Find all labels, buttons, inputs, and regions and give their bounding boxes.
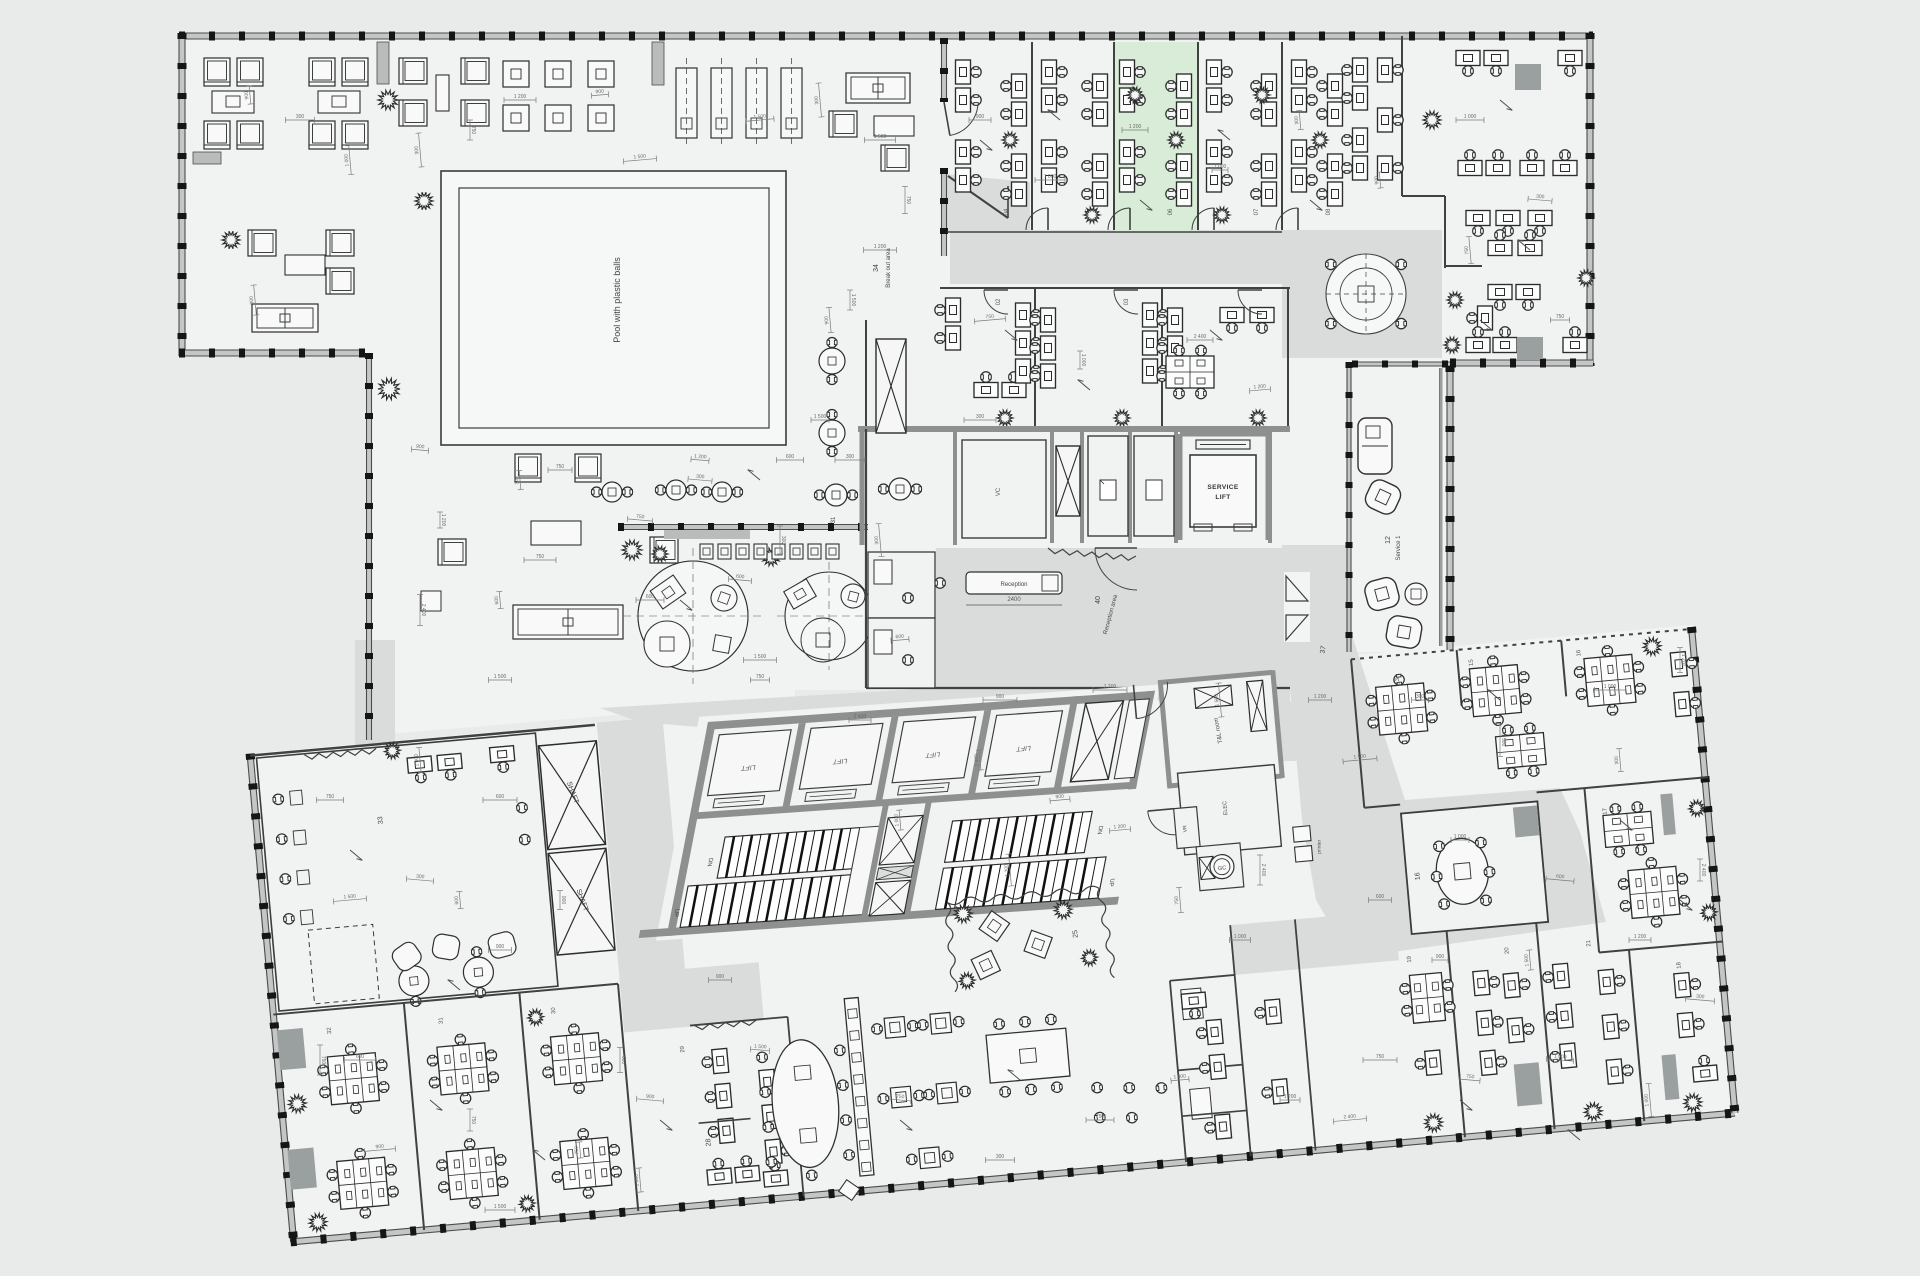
svg-text:750: 750 [470,1116,476,1125]
svg-text:600: 600 [646,594,655,600]
svg-text:300: 300 [846,454,855,460]
svg-text:900: 900 [1374,176,1381,185]
svg-text:1 200: 1 200 [514,94,527,100]
svg-text:02: 02 [996,298,1002,305]
svg-text:1 000: 1 000 [343,154,350,167]
svg-text:300: 300 [416,874,425,881]
svg-text:300: 300 [1614,756,1621,765]
svg-text:2400: 2400 [1007,597,1021,603]
svg-text:900: 900 [249,296,256,305]
svg-text:750: 750 [326,794,335,800]
svg-text:2 400: 2 400 [1260,864,1266,877]
svg-text:LIFT: LIFT [1215,494,1230,501]
svg-text:16: 16 [1576,649,1583,657]
svg-text:900: 900 [1055,794,1064,801]
svg-text:LIFT: LIFT [924,750,940,758]
svg-text:19: 19 [1407,955,1414,963]
svg-text:13: 13 [1395,677,1402,685]
svg-text:300: 300 [514,476,521,485]
svg-text:31: 31 [831,516,837,523]
svg-text:20: 20 [1504,946,1511,954]
svg-text:1 000: 1 000 [633,1174,640,1187]
svg-text:600: 600 [736,574,745,581]
svg-text:750: 750 [1556,314,1565,320]
svg-text:900: 900 [560,896,566,905]
svg-text:300: 300 [814,96,821,105]
svg-text:1 500: 1 500 [1500,734,1506,747]
svg-text:600: 600 [454,896,461,905]
svg-text:600: 600 [494,596,501,605]
svg-text:600: 600 [895,634,904,641]
svg-text:29: 29 [680,1045,687,1053]
svg-text:1 500: 1 500 [754,1043,767,1050]
svg-text:300: 300 [780,536,786,545]
svg-text:2 400: 2 400 [854,714,867,720]
svg-text:34: 34 [873,264,880,272]
svg-text:GC: GC [1218,865,1227,872]
svg-text:1 200: 1 200 [694,453,707,460]
svg-text:1 000: 1 000 [413,754,420,767]
svg-text:1 500: 1 500 [814,414,827,420]
svg-text:1 000: 1 000 [1214,164,1227,170]
svg-text:1 200: 1 200 [1253,383,1266,390]
svg-text:16: 16 [1414,872,1422,880]
svg-text:600: 600 [1376,894,1385,900]
svg-text:300: 300 [296,114,305,120]
svg-text:750: 750 [636,514,645,521]
svg-text:1 500: 1 500 [633,153,646,160]
svg-text:30: 30 [551,1006,558,1014]
svg-text:600: 600 [620,1056,626,1065]
svg-text:LIFT: LIFT [832,757,848,765]
svg-text:1 500: 1 500 [754,654,767,660]
svg-text:300: 300 [696,474,705,481]
svg-text:21: 21 [1586,939,1593,947]
svg-text:900: 900 [244,91,251,100]
svg-text:900: 900 [496,944,505,950]
svg-text:900: 900 [716,974,725,980]
svg-text:VC: VC [996,487,1002,496]
svg-text:37: 37 [1319,645,1327,654]
svg-text:2 400: 2 400 [1194,334,1207,340]
svg-text:2 400: 2 400 [420,604,426,617]
svg-text:04: 04 [1004,208,1010,215]
svg-text:40: 40 [1095,596,1102,604]
svg-text:18: 18 [1676,961,1683,969]
svg-text:900: 900 [416,444,425,451]
svg-text:300: 300 [996,1154,1005,1160]
svg-text:LIFT: LIFT [740,763,756,771]
svg-text:900: 900 [996,694,1005,700]
svg-text:Reception: Reception [1000,582,1027,588]
svg-text:1 200: 1 200 [1003,864,1010,877]
svg-text:Pool with plastic balls: Pool with plastic balls [612,257,622,343]
svg-text:07: 07 [1254,208,1260,215]
svg-text:03: 03 [1124,298,1130,305]
svg-text:300: 300 [414,146,421,155]
svg-text:1 200: 1 200 [1314,694,1327,700]
svg-text:1 000: 1 000 [893,814,900,827]
svg-text:1 500: 1 500 [1213,694,1220,707]
svg-text:300: 300 [976,414,985,420]
svg-text:28: 28 [705,1138,713,1146]
svg-text:300: 300 [1294,116,1301,125]
svg-text:1 200: 1 200 [1284,1094,1297,1100]
svg-text:300: 300 [1696,994,1705,1001]
svg-text:SERVICE: SERVICE [1207,484,1238,491]
svg-text:750: 750 [536,554,545,560]
svg-text:ELEC: ELEC [1222,801,1229,816]
svg-text:600: 600 [1556,874,1565,881]
svg-text:printer: printer [1317,839,1323,854]
svg-text:17: 17 [1602,807,1609,815]
svg-text:900: 900 [595,89,604,96]
svg-text:33: 33 [377,816,385,824]
svg-text:750: 750 [1464,246,1471,255]
svg-text:12: 12 [1385,536,1392,544]
svg-text:15: 15 [1468,658,1475,666]
svg-text:VR: VR [1182,825,1189,833]
svg-text:1 200: 1 200 [874,244,887,250]
svg-text:1 000: 1 000 [1604,684,1617,690]
svg-text:750: 750 [756,674,765,680]
svg-text:1 500: 1 500 [494,674,507,680]
svg-text:300: 300 [1416,694,1425,700]
svg-text:2 400: 2 400 [1343,1113,1356,1120]
svg-text:900: 900 [646,1094,655,1101]
svg-text:600: 600 [496,794,505,800]
svg-text:750: 750 [1096,1114,1105,1120]
svg-text:750: 750 [1376,1054,1385,1060]
svg-text:750: 750 [896,1094,905,1101]
svg-text:1 200: 1 200 [440,514,446,527]
svg-text:2 400: 2 400 [973,754,980,767]
svg-text:1 000: 1 000 [1234,934,1247,940]
svg-text:31: 31 [438,1016,445,1024]
svg-text:600: 600 [356,1054,365,1060]
svg-text:32: 32 [327,1026,334,1034]
svg-text:1 000: 1 000 [1044,174,1057,180]
svg-text:25: 25 [1072,930,1080,938]
svg-text:900: 900 [1436,954,1445,960]
svg-text:1 500: 1 500 [850,294,856,307]
svg-text:750: 750 [320,1056,326,1065]
svg-text:750: 750 [905,196,911,205]
svg-text:LIFT: LIFT [1015,744,1031,752]
svg-text:900: 900 [375,1144,384,1151]
svg-text:750: 750 [574,1146,581,1155]
svg-text:1 500: 1 500 [1523,954,1530,967]
svg-text:1 500: 1 500 [874,134,887,140]
svg-text:750: 750 [1174,896,1181,905]
svg-text:1 500: 1 500 [1353,753,1366,760]
svg-text:1 000: 1 000 [1554,1053,1567,1060]
svg-text:1 000: 1 000 [1464,114,1477,120]
svg-text:1 000: 1 000 [1080,354,1086,367]
svg-text:Service 1: Service 1 [1396,535,1402,561]
svg-text:750: 750 [556,464,565,470]
svg-text:750: 750 [1466,1074,1475,1081]
svg-text:600: 600 [786,454,795,460]
svg-text:1 500: 1 500 [343,893,356,900]
svg-text:1 200: 1 200 [1129,124,1142,130]
svg-text:1 200: 1 200 [1634,934,1647,940]
svg-text:1 000: 1 000 [1454,834,1467,840]
svg-text:1 000: 1 000 [1643,1094,1650,1107]
svg-text:Break out area: Break out area [886,248,892,288]
svg-text:900: 900 [976,114,985,120]
svg-text:1 500: 1 500 [494,1204,507,1210]
svg-text:1 200: 1 200 [1113,823,1126,830]
svg-text:1 500: 1 500 [753,113,766,120]
svg-text:750: 750 [985,314,994,321]
svg-text:1 000: 1 000 [1173,1073,1186,1080]
svg-text:08: 08 [1326,208,1332,215]
svg-text:300: 300 [1536,194,1545,201]
svg-text:1 200: 1 200 [1104,684,1117,690]
svg-text:750: 750 [470,126,476,135]
svg-text:1 200: 1 200 [1680,654,1686,667]
svg-text:300: 300 [874,536,881,545]
svg-text:900: 900 [824,316,831,325]
svg-text:2 400: 2 400 [1700,864,1706,877]
svg-text:06: 06 [1168,208,1174,215]
